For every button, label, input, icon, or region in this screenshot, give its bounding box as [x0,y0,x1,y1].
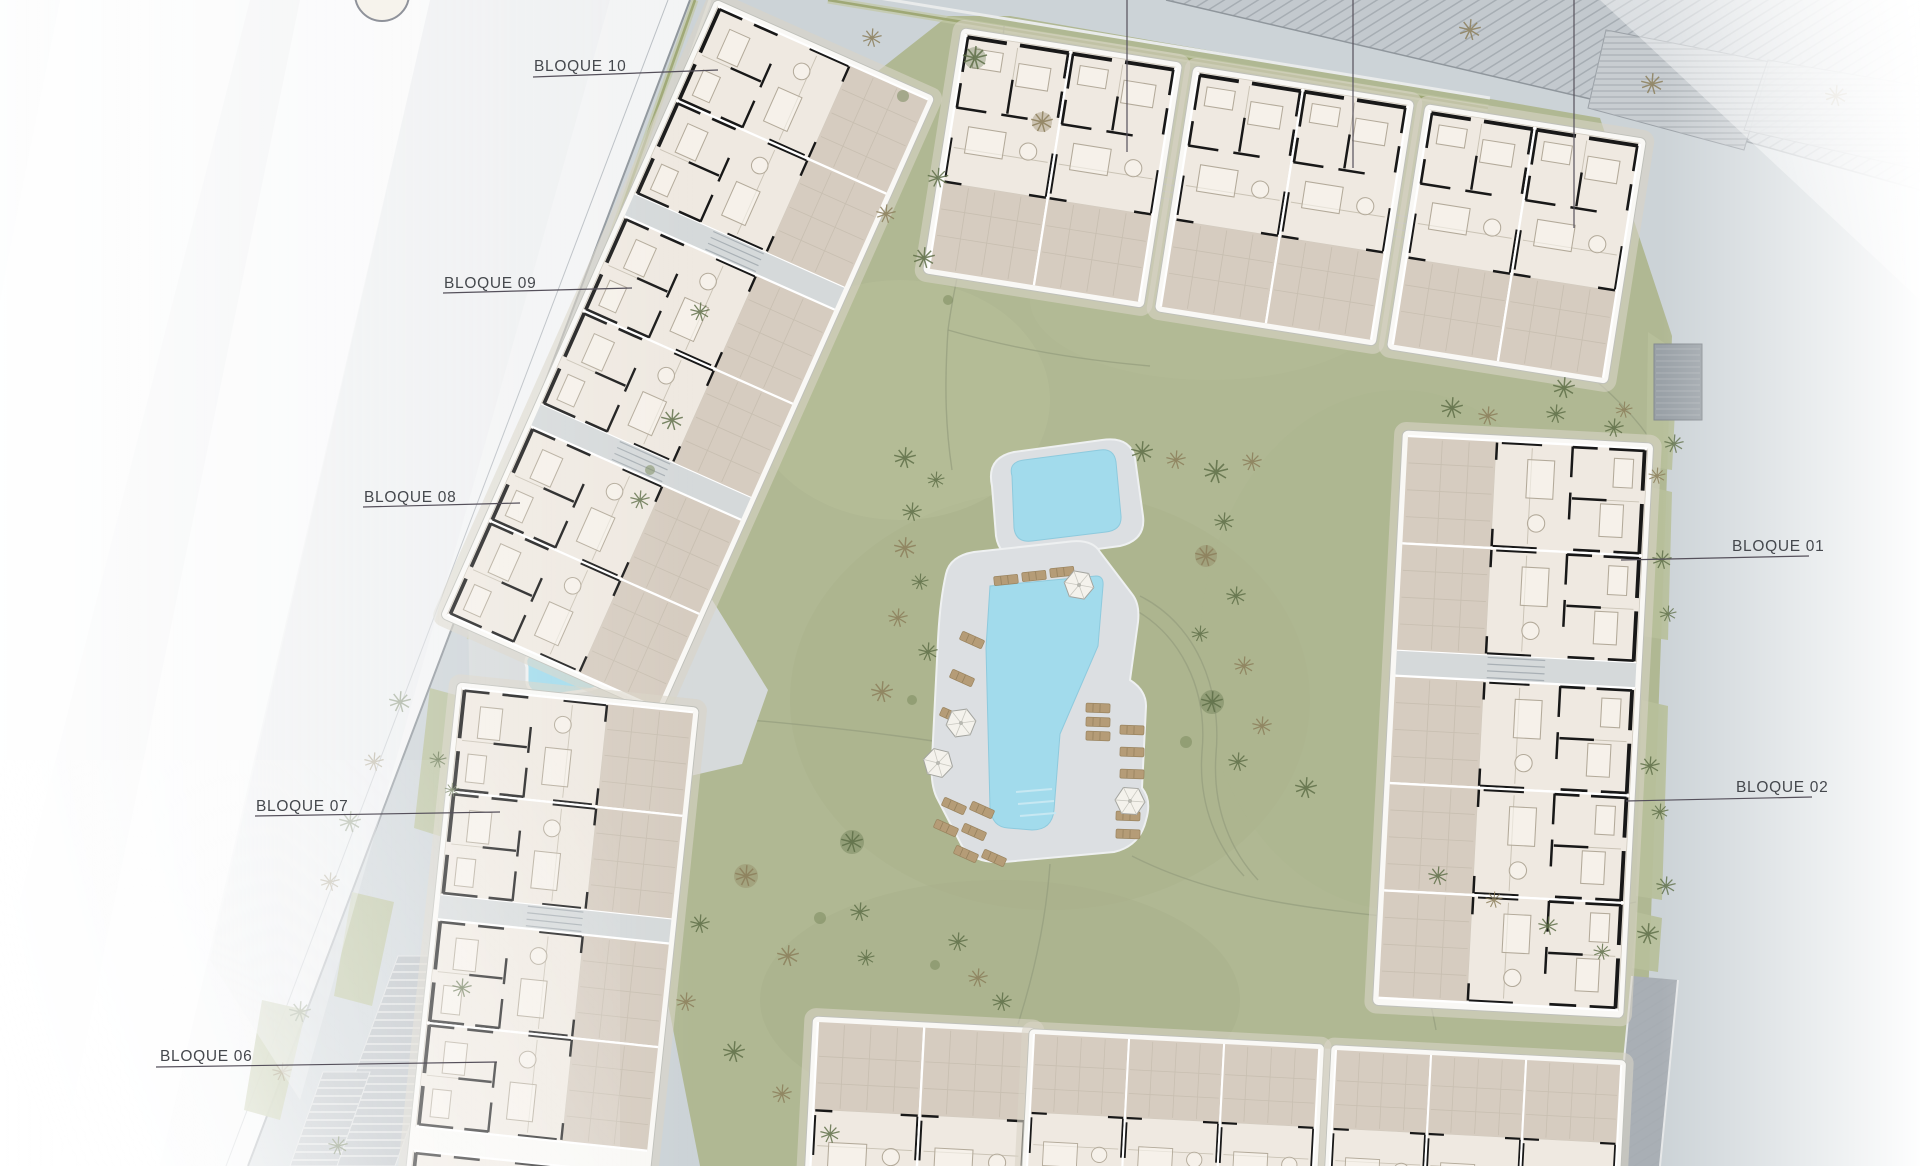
label-bloque-02: BLOQUE 02 [1736,779,1828,796]
top-building-3 [1382,99,1651,389]
site-plan: BLOQUE 10 BLOQUE 09 BLOQUE 08 BLOQUE 07 … [0,0,1920,1166]
kids-pool [991,439,1143,558]
top-building-1 [918,23,1187,313]
site-plan-drawing: BLOQUE 10 BLOQUE 09 BLOQUE 08 BLOQUE 07 … [0,0,1920,1166]
label-bloque-07: BLOQUE 07 [256,798,348,815]
bottom-building-2 [1014,1025,1328,1166]
building-bloque-01-02 [1368,426,1657,1022]
top-building-2 [1150,61,1419,351]
label-bloque-06: BLOQUE 06 [160,1048,252,1065]
label-bloque-09: BLOQUE 09 [444,275,536,292]
bottom-building-1 [796,1012,1041,1166]
bottom-building-3 [1316,1041,1630,1166]
label-bloque-01: BLOQUE 01 [1732,538,1824,555]
label-bloque-10: BLOQUE 10 [534,58,626,75]
label-bloque-08: BLOQUE 08 [364,489,456,506]
